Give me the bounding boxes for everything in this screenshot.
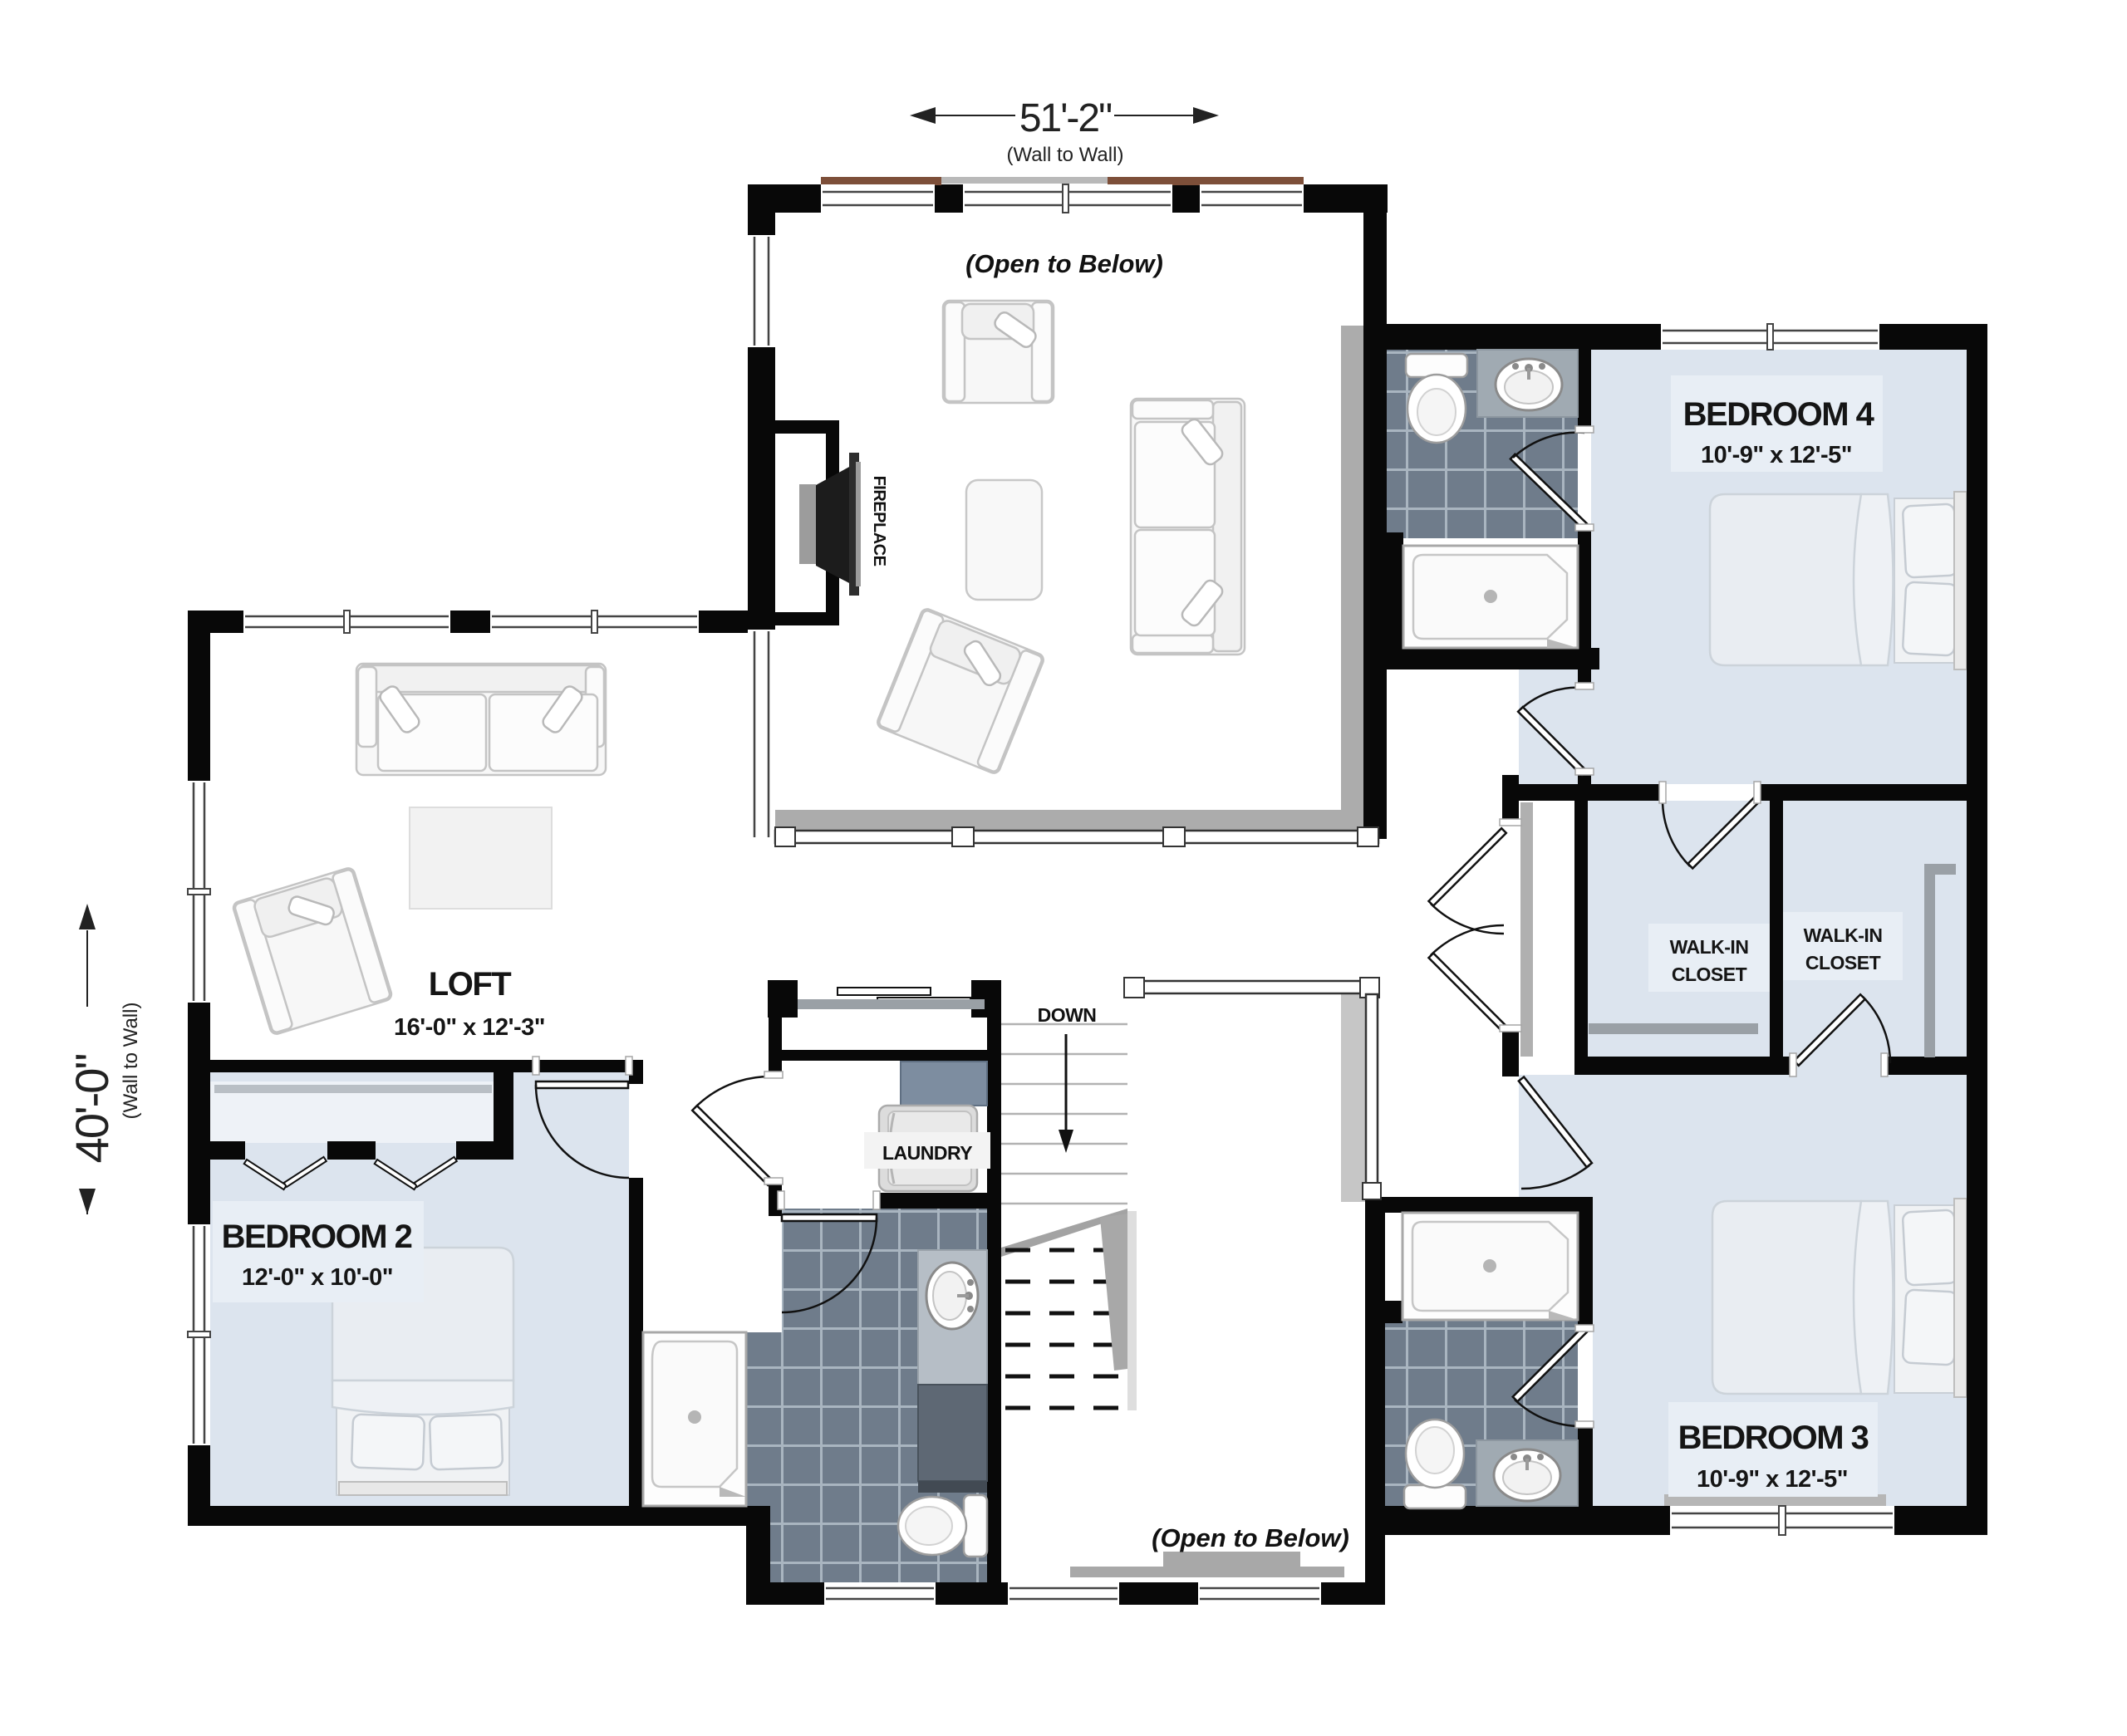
svg-text:FIREPLACE: FIREPLACE bbox=[870, 476, 888, 566]
svg-text:51'-2": 51'-2" bbox=[1019, 96, 1111, 140]
svg-text:DOWN: DOWN bbox=[1038, 1004, 1097, 1026]
svg-text:WALK-IN: WALK-IN bbox=[1670, 936, 1749, 958]
svg-text:LAUNDRY: LAUNDRY bbox=[882, 1142, 972, 1164]
svg-text:BEDROOM 4: BEDROOM 4 bbox=[1683, 396, 1875, 433]
svg-text:16'-0" x 12'-3": 16'-0" x 12'-3" bbox=[394, 1014, 545, 1041]
svg-text:BEDROOM 3: BEDROOM 3 bbox=[1678, 1420, 1869, 1456]
svg-text:(Wall to Wall): (Wall to Wall) bbox=[120, 1003, 142, 1120]
svg-text:12'-0" x 10'-0": 12'-0" x 10'-0" bbox=[242, 1264, 393, 1291]
svg-text:10'-9" x 12'-5": 10'-9" x 12'-5" bbox=[1697, 1466, 1848, 1493]
svg-text:10'-9" x 12'-5": 10'-9" x 12'-5" bbox=[1701, 442, 1852, 468]
svg-text:(Wall to Wall): (Wall to Wall) bbox=[1007, 144, 1124, 166]
svg-text:(Open to Below): (Open to Below) bbox=[965, 249, 1163, 278]
svg-text:CLOSET: CLOSET bbox=[1672, 964, 1747, 985]
svg-text:BEDROOM 2: BEDROOM 2 bbox=[222, 1219, 412, 1255]
svg-text:(Open to Below): (Open to Below) bbox=[1152, 1523, 1349, 1552]
svg-text:CLOSET: CLOSET bbox=[1805, 952, 1881, 973]
svg-text:WALK-IN: WALK-IN bbox=[1804, 924, 1883, 946]
svg-text:40'-0": 40'-0" bbox=[66, 1055, 118, 1164]
svg-text:LOFT: LOFT bbox=[429, 966, 511, 1003]
